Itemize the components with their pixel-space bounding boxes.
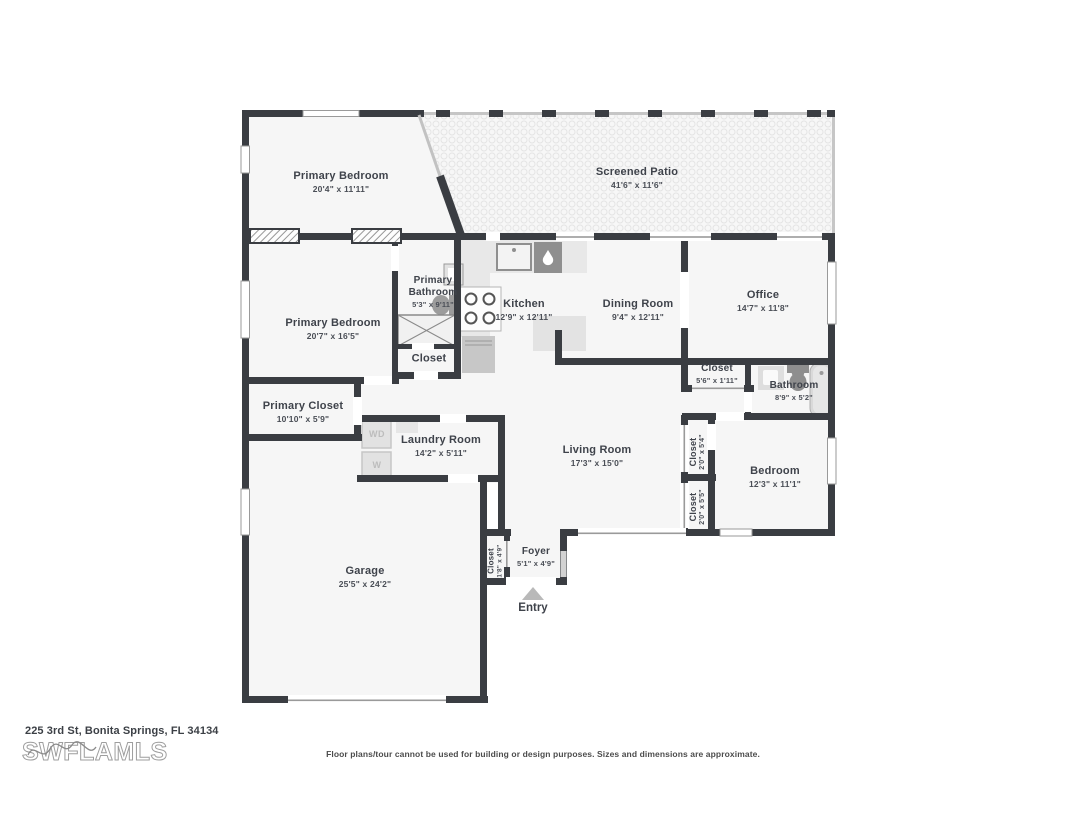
hatched-window-box [250, 229, 299, 243]
bath-sink-icon [758, 366, 784, 390]
shower-icon [398, 315, 455, 346]
hatched-window-box [352, 229, 401, 243]
floor-plan-page: Primary Bedroom 20'4" x 11'11" Screened … [0, 0, 1086, 814]
dishwasher-icon [462, 336, 495, 373]
entry-arrow-icon [522, 587, 544, 600]
washer-label: W [373, 460, 382, 470]
refrigerator-icon [534, 242, 562, 273]
washer-dryer-label: WD [369, 429, 385, 439]
floor-plan-graphic [0, 0, 1086, 814]
kitchen-sink-icon [497, 244, 531, 270]
stove-icon [459, 287, 501, 331]
entry-label: Entry [518, 602, 547, 614]
disclaimer-text: Floor plans/tour cannot be used for buil… [0, 749, 1086, 759]
